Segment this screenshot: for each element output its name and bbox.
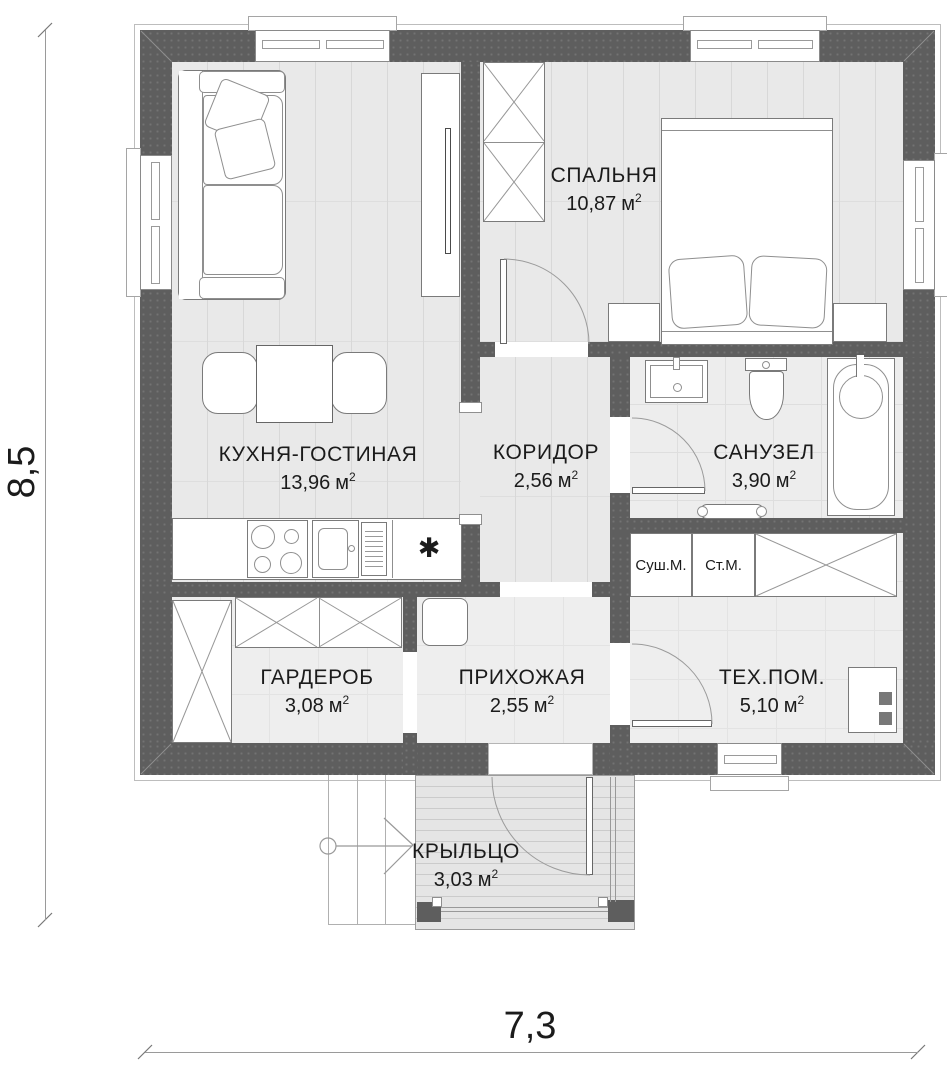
- tv-console: [421, 73, 460, 297]
- stove-burner-2: [284, 529, 299, 544]
- entrance-threshold: [488, 743, 593, 775]
- dryer-label: Суш.М.: [631, 534, 691, 596]
- boiler-vent-1: [879, 692, 892, 705]
- room-label-bathroom: САНУЗЕЛ 3,90м2: [713, 441, 814, 493]
- bedroom-wardrobe: [483, 62, 545, 222]
- dryer-box: Суш.М.: [630, 533, 692, 597]
- room-area-wardrobe: 3,08м2: [260, 693, 373, 718]
- wall-top-2: [390, 30, 690, 62]
- wall-right-1: [903, 30, 935, 160]
- bathtub-faucet: [856, 355, 864, 377]
- bathtub: [827, 358, 895, 516]
- bed: [661, 118, 833, 345]
- boiler: [848, 667, 897, 733]
- bed-sheet-line: [662, 331, 832, 332]
- stove-burner-3: [254, 556, 271, 573]
- fridge-symbol: ✱: [412, 533, 446, 564]
- room-label-bedroom: СПАЛЬНЯ 10,87м2: [551, 164, 658, 216]
- wall-corridor-bath-a: [610, 357, 630, 417]
- toilet-cistern: [745, 358, 787, 371]
- sofa: [178, 70, 286, 300]
- bed-footboard: [662, 130, 832, 131]
- sofa-back: [179, 71, 203, 299]
- bathroom-sink: [645, 360, 708, 403]
- bed-pillow-right: [748, 255, 828, 329]
- tech-room-door: [632, 720, 712, 727]
- room-area-kitchen-living: 13,96м2: [219, 470, 418, 495]
- boiler-vent-2: [879, 712, 892, 725]
- window-sill-bottom-tech: [710, 776, 789, 791]
- room-area-corridor: 2,56м2: [493, 468, 599, 493]
- floor-passage-living-corridor: [461, 410, 480, 517]
- sink-faucet: [673, 357, 680, 370]
- wall-living-bedroom: [461, 62, 480, 410]
- window-bottom-tech: [717, 743, 782, 775]
- room-area-porch: 3,03м2: [412, 867, 520, 892]
- wardrobe-upper-cabinets: [235, 597, 402, 648]
- dining-chair-left: [202, 352, 258, 414]
- porch-rail-base-right: [598, 897, 608, 907]
- wall-bottom-3: [782, 743, 935, 775]
- dimension-line-horizontal: [145, 1052, 918, 1053]
- dining-table: [256, 345, 333, 423]
- sofa-seat-2: [203, 185, 283, 275]
- wall-kitchen-bottom: [140, 582, 500, 597]
- stair-tread-2: [385, 773, 386, 925]
- towel-radiator: [700, 504, 764, 519]
- room-label-tech-room: ТЕХ.ПОМ. 5,10м2: [719, 666, 825, 718]
- stairs: [328, 773, 415, 925]
- room-label-kitchen-living: КУХНЯ-ГОСТИНАЯ 13,96м2: [219, 443, 418, 495]
- dimension-line-vertical: [45, 30, 46, 920]
- nightstand-right: [833, 303, 887, 342]
- stove-burner-4: [280, 552, 302, 574]
- porch-post-right: [608, 900, 634, 922]
- counter-divider: [392, 520, 393, 578]
- dining-chair-right: [331, 352, 387, 414]
- kitchen-sink-unit: [312, 520, 359, 578]
- window-left: [140, 155, 172, 290]
- wall-wardrobe-hall-b: [403, 733, 417, 775]
- washer-box: Ст.М.: [692, 533, 755, 597]
- room-area-bedroom: 10,87м2: [551, 191, 658, 216]
- toilet-bowl: [749, 371, 784, 420]
- room-area-bathroom: 3,90м2: [713, 468, 814, 493]
- room-label-corridor: КОРИДОР 2,56м2: [493, 441, 599, 493]
- window-sill-top-bedroom: [683, 16, 827, 31]
- dish-rack: [361, 522, 387, 576]
- room-label-porch: КРЫЛЬЦО 3,03м2: [412, 840, 520, 892]
- bathroom-door: [632, 487, 705, 494]
- dimension-height-label: 8,5: [2, 442, 42, 502]
- wall-wardrobe-hall-a: [403, 597, 417, 652]
- washer-label: Ст.М.: [693, 534, 754, 596]
- wardrobe-tall-cabinet: [172, 600, 232, 743]
- nightstand-left: [608, 303, 660, 342]
- wall-right-2: [903, 290, 935, 775]
- window-top-bedroom: [690, 30, 820, 62]
- window-sill-top-living: [248, 16, 397, 31]
- dimension-width-label: 7,3: [480, 1005, 580, 1048]
- sink-drain: [673, 383, 682, 392]
- sofa-armrest-bottom: [199, 277, 285, 299]
- window-sill-right: [934, 153, 947, 297]
- room-label-hallway: ПРИХОЖАЯ 2,55м2: [459, 666, 586, 718]
- room-area-hallway: 2,55м2: [459, 693, 586, 718]
- wall-bottom-1: [140, 743, 488, 775]
- wall-hall-tech: [610, 725, 630, 775]
- entrance-door: [586, 777, 593, 875]
- wall-bath-bottom: [610, 518, 903, 533]
- tech-cabinet: [755, 533, 897, 597]
- hallway-cabinet: [422, 598, 468, 646]
- porch-rail-right: [610, 777, 616, 902]
- kitchen-sink-bowl: [318, 528, 348, 570]
- stove-burner-1: [251, 525, 275, 549]
- bed-pillow-left: [668, 254, 749, 329]
- porch-rail-base-left: [432, 897, 442, 907]
- wall-kitchen-bottom-stub: [592, 582, 610, 597]
- stair-tread-1: [357, 773, 358, 925]
- wall-left-1: [140, 30, 172, 155]
- passage-jamb-bottom: [459, 514, 482, 525]
- passage-jamb-top: [459, 402, 482, 413]
- floor-plan: ✱ Суш.М. Ст.М.: [0, 0, 947, 1082]
- bedroom-door: [500, 259, 507, 344]
- room-label-wardrobe: ГАРДЕРОБ 3,08м2: [260, 666, 373, 718]
- wall-corridor-bath-b: [610, 493, 630, 643]
- stove: [247, 520, 308, 578]
- porch-rail-bottom: [441, 907, 608, 912]
- window-top-living: [255, 30, 390, 62]
- tv: [445, 128, 451, 254]
- bathtub-drain: [839, 375, 883, 419]
- room-area-tech-room: 5,10м2: [719, 693, 825, 718]
- wall-left-2: [140, 290, 172, 775]
- window-sill-left: [126, 148, 141, 297]
- window-right-bedroom: [903, 160, 935, 290]
- kitchen-faucet: [348, 545, 355, 552]
- wall-bedroom-bottom-a: [461, 342, 495, 357]
